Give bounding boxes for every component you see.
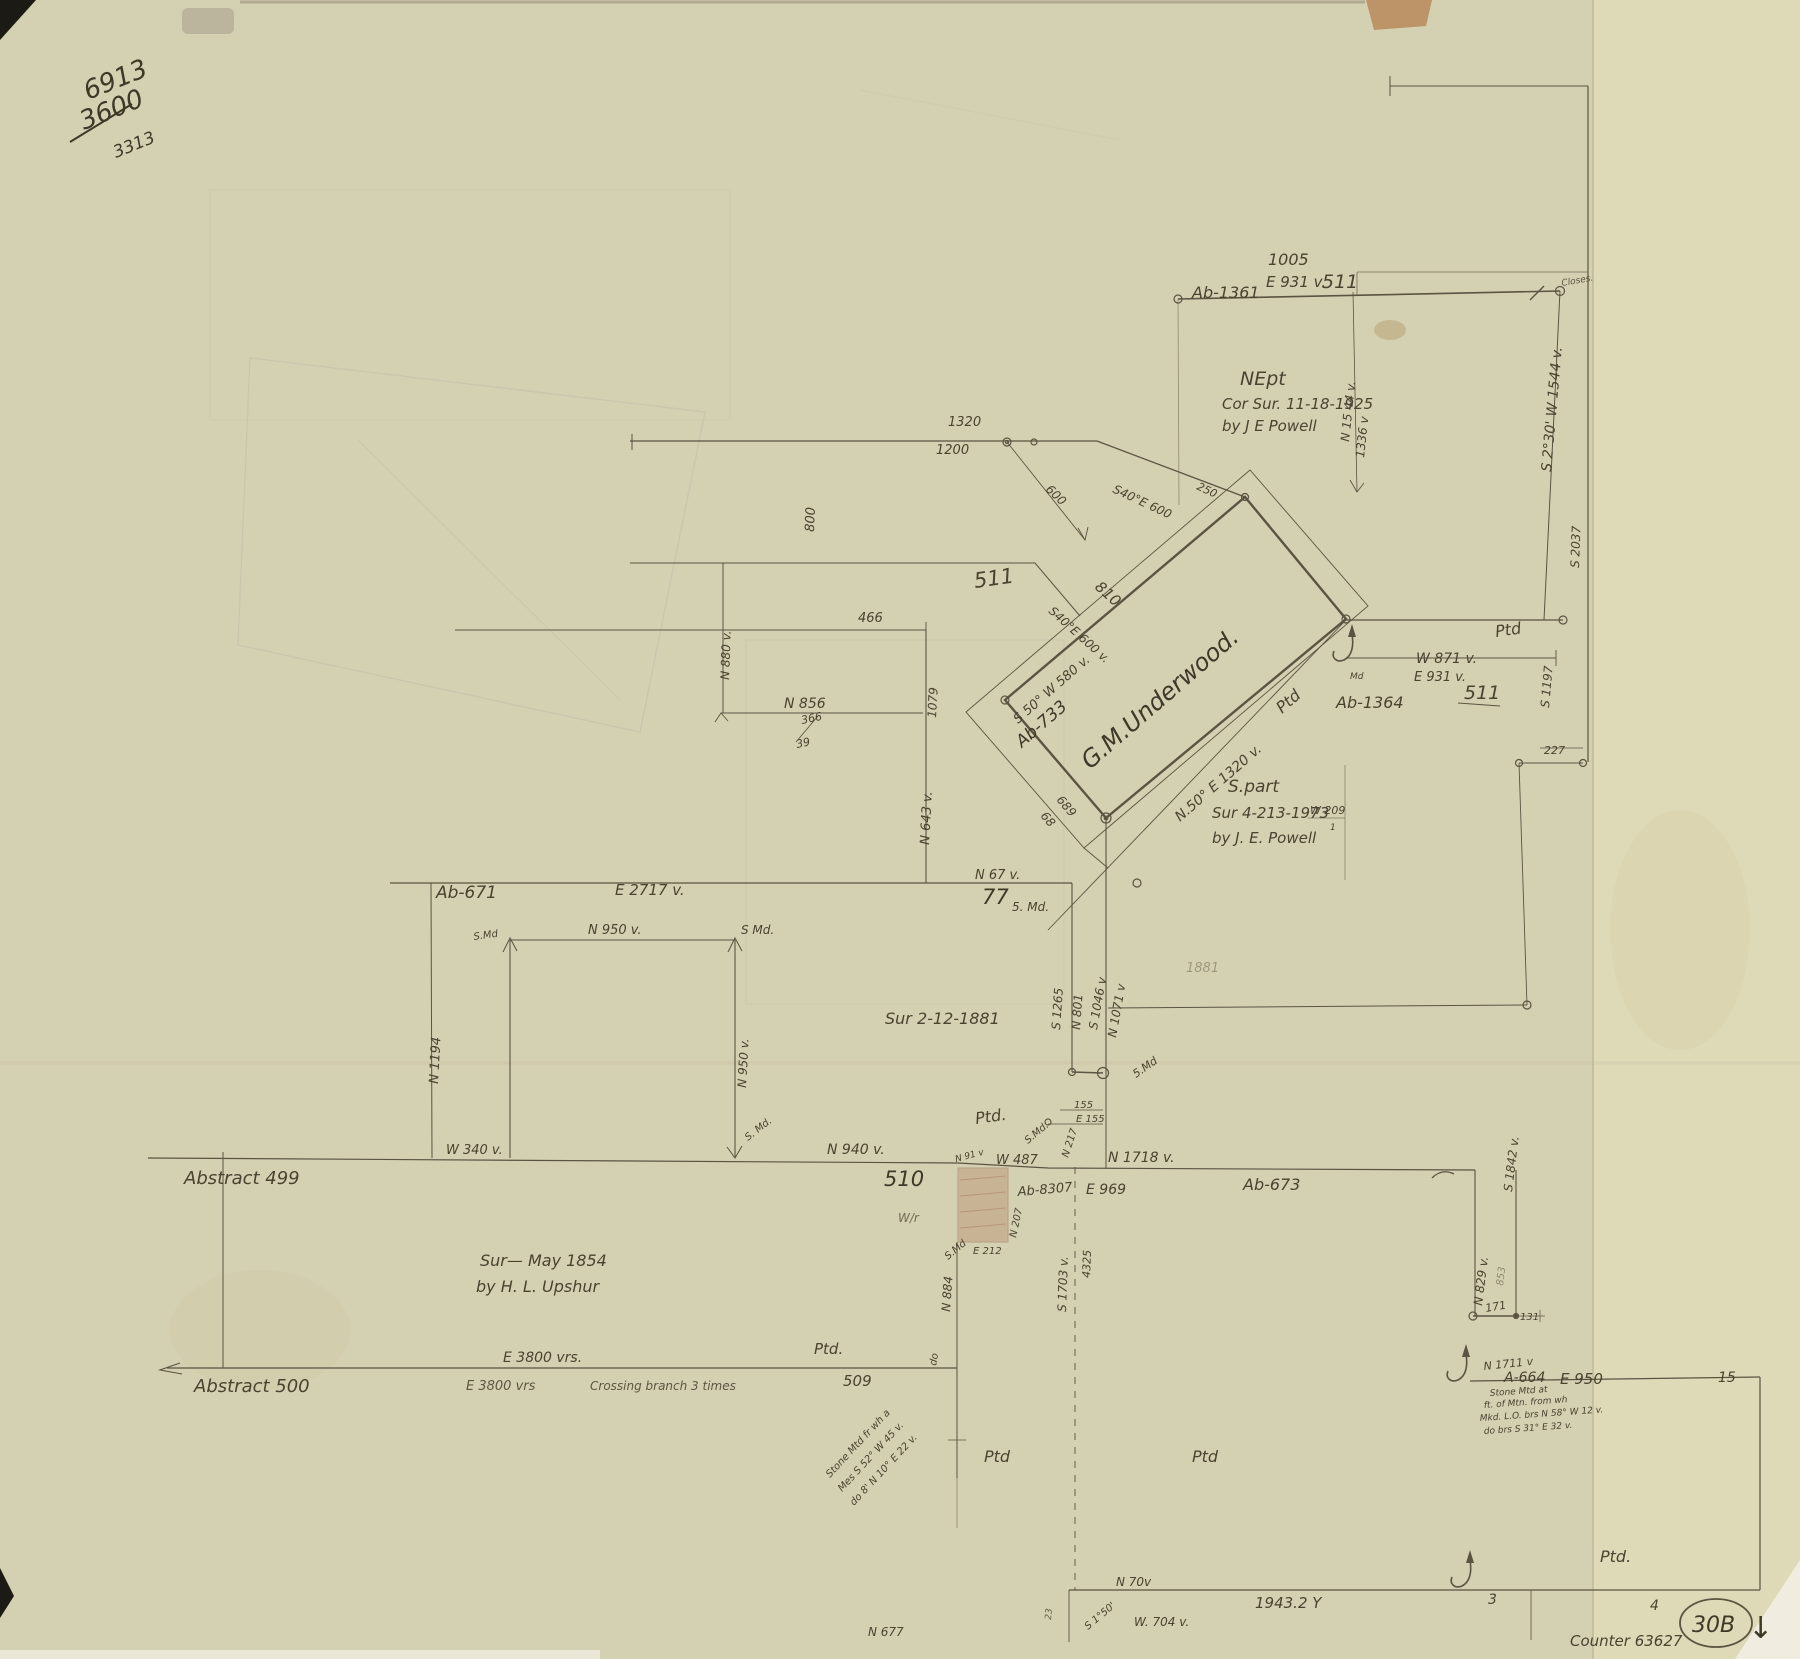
label-e2717: E 2717 v. — [615, 881, 685, 899]
label-tr-dist: 1005 — [1268, 250, 1309, 269]
label-15: 15 — [1718, 1370, 1736, 1386]
label-crossing: Crossing branch 3 times — [590, 1379, 736, 1393]
label-n70: N 70v — [1116, 1575, 1152, 1589]
label-spart-3: by J. E. Powell — [1212, 829, 1317, 847]
label-227: 227 — [1544, 744, 1565, 757]
label-e931: E 931 v. — [1414, 670, 1466, 685]
label-sec511-mid: 511 — [1464, 682, 1500, 704]
shaded-tract — [958, 1168, 1008, 1242]
label-ab671: Ab-671 — [435, 883, 497, 903]
label-tr-section: 511 — [1322, 271, 1358, 293]
label-n67: N 67 v. — [975, 868, 1020, 883]
label-e155: E 155 — [1076, 1114, 1105, 1125]
label-w871: W 871 v. — [1416, 651, 1477, 667]
label-466: 466 — [858, 611, 883, 626]
label-4325: 4325 — [1080, 1250, 1094, 1278]
label-w209-tick: 1 — [1330, 823, 1336, 833]
label-n940: N 940 v. — [827, 1142, 885, 1158]
label-md-small: Md — [1350, 672, 1364, 682]
survey-plat-sheet: 6913 3600 3313 1005 E 931 v. Ab-1361 511… — [0, 0, 1800, 1659]
label-abstract499: Abstract 499 — [183, 1168, 300, 1189]
label-e969: E 969 — [1086, 1182, 1126, 1198]
label-spart-2: Sur 4-213-1973 — [1212, 804, 1329, 822]
label-s2037: S 2037 — [1568, 525, 1583, 568]
label-1079: 1079 — [925, 687, 941, 718]
label-n643: N 643 v. — [918, 791, 936, 845]
label-md5: 5. Md. — [1012, 900, 1049, 914]
label-e950: E 950 — [1560, 1370, 1603, 1388]
label-sur1854-1: Sur— May 1854 — [480, 1251, 607, 1270]
label-e3800-top: E 3800 vrs. — [503, 1350, 582, 1366]
label-tr-abstract: Ab-1361 — [1191, 283, 1260, 302]
label-23: 23 — [1044, 1608, 1055, 1621]
label-n677: N 677 — [868, 1625, 904, 1639]
label-853: 853 — [1495, 1266, 1508, 1286]
label-n884: N 884 — [939, 1276, 955, 1313]
label-510: 510 — [884, 1167, 924, 1191]
label-509: 509 — [843, 1372, 872, 1390]
label-3: 3 — [1488, 1592, 1497, 1608]
label-sheet-number: 30B — [1692, 1613, 1735, 1638]
label-n880: N 880 v. — [718, 630, 734, 680]
label-131: 131 — [1520, 1312, 1539, 1323]
label-155: 155 — [1074, 1100, 1093, 1111]
label-nept-1: NEpt — [1240, 368, 1287, 390]
label-abstract500: Abstract 500 — [193, 1376, 310, 1397]
label-s1265: S 1265 — [1049, 987, 1066, 1030]
label-s1703: S 1703 v. — [1055, 1256, 1071, 1312]
label-do: do — [928, 1352, 941, 1366]
label-w340: W 340 v. — [446, 1143, 503, 1158]
label-n1718: N 1718 v. — [1108, 1150, 1175, 1166]
label-ghost-1881: 1881 — [1186, 961, 1219, 976]
label-ab673: Ab-673 — [1242, 1175, 1300, 1194]
label-nept-3: by J E Powell — [1222, 417, 1317, 435]
label-n801: N 801 — [1069, 994, 1085, 1031]
label-n1194: N 1194 — [427, 1037, 444, 1085]
label-smd-tr: S Md. — [741, 923, 774, 937]
label-n950-right: N 950 v. — [735, 1038, 752, 1088]
label-wr: W/r — [898, 1211, 920, 1225]
label-n950-top: N 950 v. — [588, 923, 642, 938]
label-ab1364: Ab-1364 — [1335, 693, 1404, 712]
down-arrow-icon: ↓ — [1748, 1611, 1773, 1646]
label-800: 800 — [803, 507, 819, 532]
label-ptd-b1: Ptd — [984, 1447, 1011, 1466]
label-ptd-b2: Ptd — [1192, 1447, 1219, 1466]
label-spart-1: S.part — [1228, 777, 1280, 797]
label-w487: W 487 — [996, 1153, 1039, 1168]
label-1200: 1200 — [936, 443, 969, 458]
label-19432: 1943.2 Y — [1255, 1594, 1323, 1612]
label-sur1881: Sur 2-12-1881 — [885, 1009, 1000, 1028]
label-77: 77 — [982, 885, 1009, 909]
label-w704: W. 704 v. — [1134, 1615, 1189, 1629]
label-sur1854-2: by H. L. Upshur — [476, 1277, 600, 1296]
label-4: 4 — [1650, 1598, 1659, 1614]
label-1320: 1320 — [948, 415, 981, 430]
label-ptd-right: Ptd — [1494, 618, 1523, 641]
label-e212: E 212 — [973, 1246, 1002, 1257]
label-ptd-b3: Ptd. — [1600, 1547, 1631, 1566]
label-a664: A-664 — [1503, 1370, 1545, 1386]
label-ptd-left: Ptd. — [814, 1340, 843, 1358]
label-e3800-bottom: E 3800 vrs — [466, 1379, 536, 1394]
label-tr-bearing: E 931 v. — [1266, 273, 1326, 291]
label-counter: Counter 63627 — [1570, 1632, 1683, 1650]
